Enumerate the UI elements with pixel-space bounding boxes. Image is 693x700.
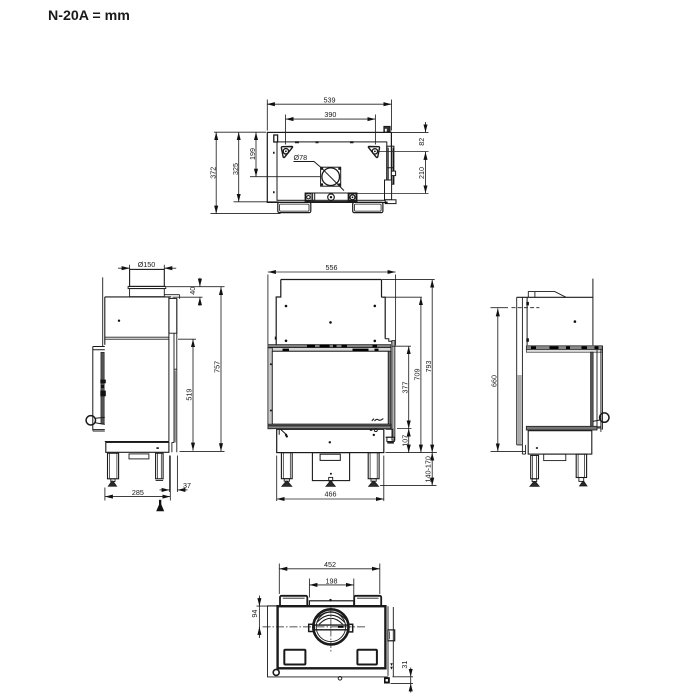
svg-text:709: 709 xyxy=(413,369,422,381)
svg-text:31: 31 xyxy=(400,661,409,669)
svg-text:539: 539 xyxy=(324,95,336,104)
svg-text:793: 793 xyxy=(424,361,433,373)
svg-text:390: 390 xyxy=(324,110,336,119)
svg-text:107: 107 xyxy=(400,435,409,447)
svg-text:556: 556 xyxy=(326,263,338,272)
svg-text:37: 37 xyxy=(183,481,191,490)
svg-text:757: 757 xyxy=(212,361,221,373)
svg-text:210: 210 xyxy=(417,167,426,179)
svg-text:660: 660 xyxy=(489,375,498,387)
svg-text:466: 466 xyxy=(325,490,337,499)
svg-text:198: 198 xyxy=(326,576,338,585)
svg-text:377: 377 xyxy=(400,382,409,394)
svg-text:325: 325 xyxy=(231,163,240,175)
svg-text:285: 285 xyxy=(132,488,144,497)
svg-text:Ø78: Ø78 xyxy=(294,153,308,162)
svg-text:140-170: 140-170 xyxy=(423,456,432,482)
svg-text:199: 199 xyxy=(248,148,257,160)
svg-text:40: 40 xyxy=(188,287,197,295)
svg-text:82: 82 xyxy=(417,138,426,146)
svg-text:372: 372 xyxy=(208,167,217,179)
svg-text:452: 452 xyxy=(324,560,336,569)
svg-text:94: 94 xyxy=(250,610,259,618)
svg-text:N-20A = mm: N-20A = mm xyxy=(48,8,130,24)
svg-text:519: 519 xyxy=(184,389,193,401)
svg-text:Ø150: Ø150 xyxy=(138,260,156,269)
